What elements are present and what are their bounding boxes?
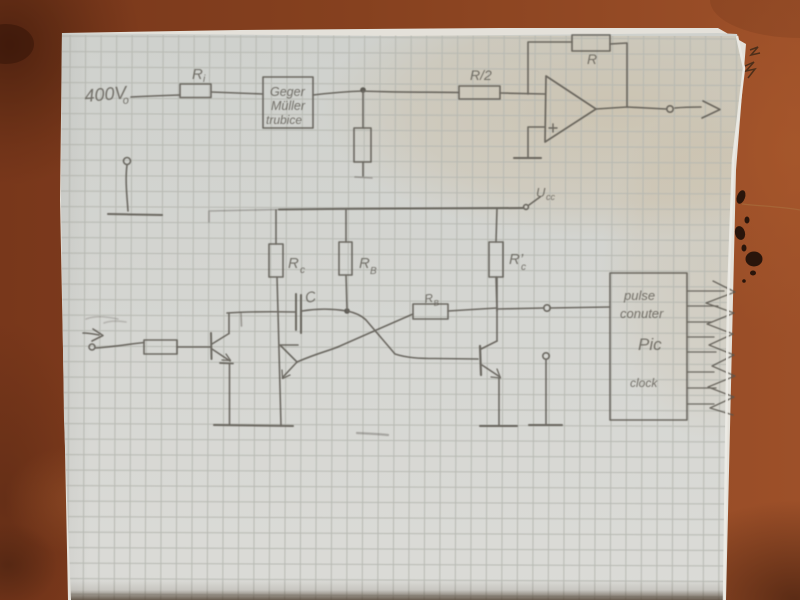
svg-text:R: R bbox=[587, 51, 597, 67]
svg-text:clock: clock bbox=[630, 376, 658, 390]
svg-text:B: B bbox=[370, 266, 377, 277]
svg-text:Geger: Geger bbox=[270, 85, 306, 99]
svg-text:c: c bbox=[521, 262, 526, 273]
svg-text:U: U bbox=[536, 185, 546, 200]
svg-text:R: R bbox=[288, 255, 299, 272]
svg-text:Müller: Müller bbox=[271, 99, 306, 113]
svg-text:conuter: conuter bbox=[620, 306, 664, 321]
svg-text:pulse: pulse bbox=[623, 288, 655, 303]
svg-text:R: R bbox=[359, 255, 370, 272]
svg-text:trubice: trubice bbox=[266, 113, 302, 127]
svg-text:R/2: R/2 bbox=[470, 67, 492, 83]
svg-text:o: o bbox=[122, 95, 129, 107]
svg-text:R: R bbox=[192, 66, 203, 83]
svg-text:Pic: Pic bbox=[638, 335, 662, 354]
svg-text:c: c bbox=[300, 265, 305, 276]
svg-text:cc: cc bbox=[546, 192, 556, 202]
